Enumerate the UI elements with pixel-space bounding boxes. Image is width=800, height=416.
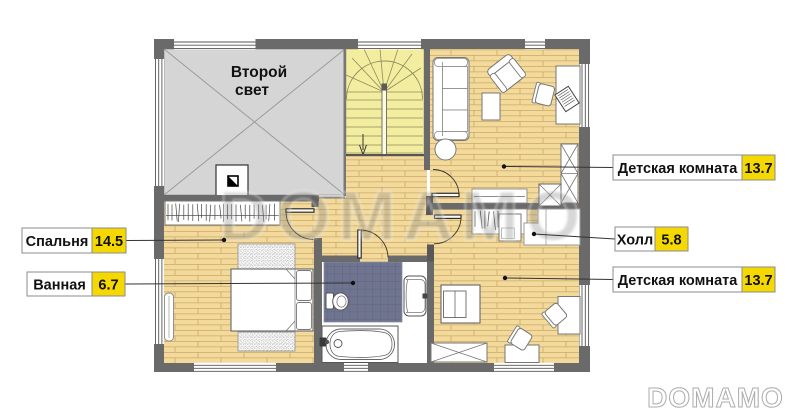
svg-text:Второй: Второй bbox=[231, 64, 287, 81]
svg-text:свет: свет bbox=[235, 82, 269, 99]
svg-text:DOMAMO: DOMAMO bbox=[219, 177, 588, 255]
svg-text:13.7: 13.7 bbox=[744, 161, 772, 177]
svg-text:DOMAMO: DOMAMO bbox=[647, 382, 784, 413]
svg-text:6.7: 6.7 bbox=[98, 278, 118, 294]
svg-text:Детская комната: Детская комната bbox=[618, 161, 739, 177]
svg-text:5.8: 5.8 bbox=[661, 233, 681, 249]
svg-text:Холл: Холл bbox=[617, 233, 653, 249]
svg-text:Детская комната: Детская комната bbox=[618, 273, 739, 289]
svg-text:Ванная: Ванная bbox=[33, 278, 86, 294]
svg-text:14.5: 14.5 bbox=[95, 234, 123, 250]
svg-text:13.7: 13.7 bbox=[744, 273, 772, 289]
svg-text:Спальня: Спальня bbox=[26, 234, 89, 250]
